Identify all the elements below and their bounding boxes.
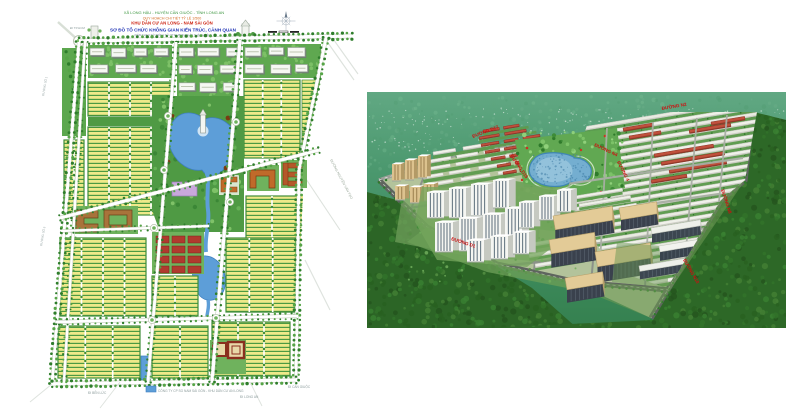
svg-text:XÃ LONG HẬU - HUYỆN CẦN GIUỘC: XÃ LONG HẬU - HUYỆN CẦN GIUỘC - TỈNH LON… [124, 10, 224, 15]
svg-text:ĐƯỜNG NGUYỄN VĂN TẠO: ĐƯỜNG NGUYỄN VĂN TẠO [329, 158, 354, 200]
svg-text:ĐI BẾN LỨC: ĐI BẾN LỨC [88, 390, 107, 395]
svg-text:ĐI TP.HCM: ĐI TP.HCM [70, 26, 85, 30]
svg-text:KHU DÂN CƯ AN LONG - NAM SÀI G: KHU DÂN CƯ AN LONG - NAM SÀI GÒN [131, 21, 212, 26]
svg-text:CÔNG TY CP SG NAM SÀI GÒN - KH: CÔNG TY CP SG NAM SÀI GÒN - KHU DÂN CƯ A… [158, 388, 244, 393]
svg-text:ĐƯỜNG SỐ 5: ĐƯỜNG SỐ 5 [38, 226, 46, 246]
svg-text:ĐI LONG AN: ĐI LONG AN [240, 395, 259, 399]
svg-text:ĐI CẦN GIUỘC: ĐI CẦN GIUỘC [288, 384, 311, 389]
svg-text:ĐƯỜNG SỐ 1: ĐƯỜNG SỐ 1 [40, 76, 48, 96]
svg-text:SƠ ĐỒ TỔ CHỨC KHÔNG GIAN KIẾN: SƠ ĐỒ TỔ CHỨC KHÔNG GIAN KIẾN TRÚC, CẢNH… [110, 26, 237, 33]
